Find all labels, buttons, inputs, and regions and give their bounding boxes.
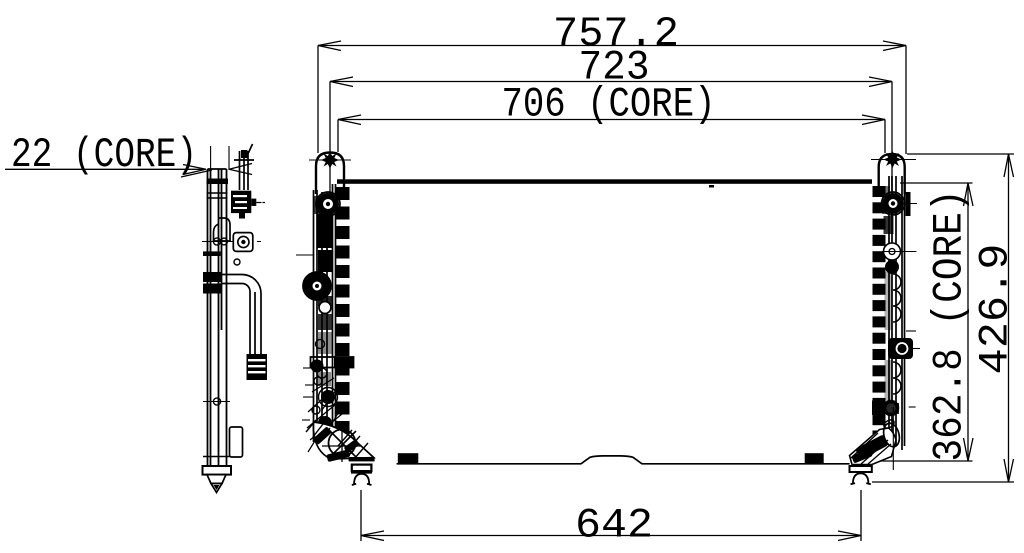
svg-text:362.8 (CORE): 362.8 (CORE) xyxy=(926,190,974,462)
svg-text:22 (CORE): 22 (CORE) xyxy=(11,131,197,179)
svg-text:642: 642 xyxy=(575,502,653,550)
svg-text:706 (CORE): 706 (CORE) xyxy=(502,81,716,129)
svg-text:426.9: 426.9 xyxy=(972,244,1020,375)
